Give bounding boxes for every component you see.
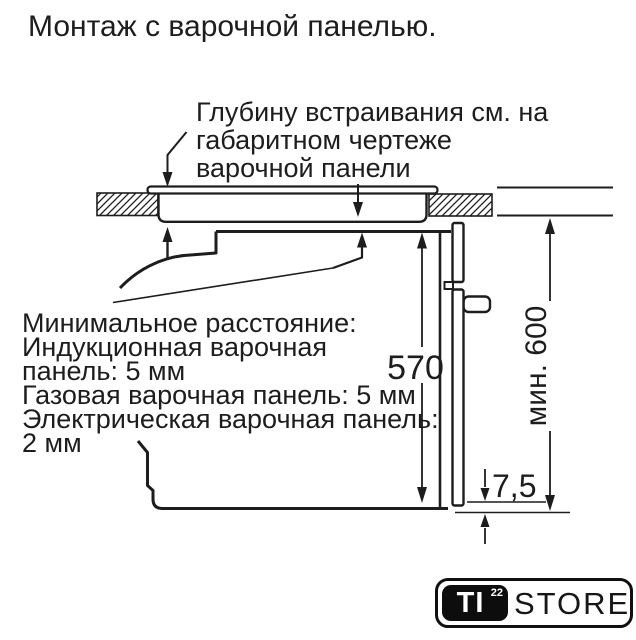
store-logo: TI 22 STORE [435, 578, 633, 628]
gap-arrow-left [163, 227, 173, 258]
note-line-5: Электрическая варочная панель: [22, 404, 439, 434]
store-logo-superscript: 22 [491, 588, 503, 599]
hob-top-plate [148, 187, 438, 194]
worktop-right-section [429, 194, 492, 216]
callout-line-3: варочной панели [196, 153, 411, 183]
note-line-6: 2 мм [22, 428, 82, 458]
callout-line-1: Глубину встраивания см. на [196, 97, 549, 127]
door-upper-profile [453, 223, 464, 282]
dimension-7-5-label: 7,5 [492, 468, 536, 504]
worktop-left-section [97, 193, 158, 216]
callout-arrow-left [163, 132, 187, 187]
adjacent-worktop-lines [497, 188, 613, 216]
store-logo-brand: TI [457, 589, 494, 618]
oven-installation-diagram: 570 мин. 600 7,5 Глубину встраивания см.… [0, 0, 636, 640]
dimension-min-600-label: мин. 600 [520, 306, 553, 427]
manual-page: Монтаж с варочной панелью. [0, 0, 636, 640]
min-distance-text: Минимальное расстояние: Индукционная вар… [22, 308, 439, 458]
store-logo-badge: TI 22 [442, 585, 508, 621]
dimension-570: 570 [387, 233, 444, 504]
door-handle [464, 297, 491, 313]
door-lower-profile [453, 290, 464, 506]
oven-bottom-outline [138, 441, 448, 509]
min-distance-leader [113, 233, 367, 303]
store-logo-text: STORE [514, 588, 630, 619]
callout-line-2: габаритном чертеже [196, 125, 452, 155]
dimension-7-5: 7,5 [455, 468, 570, 544]
door-hinge-tab [445, 282, 454, 289]
callout-text: Глубину встраивания см. на габаритном че… [196, 97, 549, 183]
hob-tub [159, 193, 427, 222]
